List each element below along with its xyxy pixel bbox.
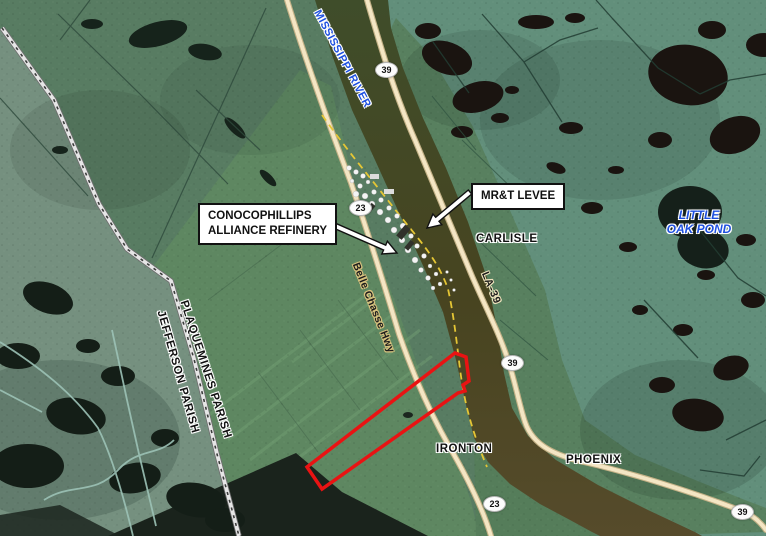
- ironton-label: IRONTON: [436, 443, 492, 455]
- route-shield-39-north: 39: [375, 62, 398, 78]
- route-shield-23-south: 23: [483, 496, 506, 512]
- route-shield-39-north-number: 39: [381, 65, 391, 75]
- route-shield-39-mid-number: 39: [507, 358, 517, 368]
- satellite-imagery: [0, 0, 766, 536]
- refinery-callout-line2: ALLIANCE REFINERY: [208, 224, 327, 239]
- phoenix-label: PHOENIX: [566, 454, 621, 466]
- little-oak-pond-line2: OAK POND: [656, 223, 742, 237]
- route-shield-23-south-number: 23: [489, 499, 499, 509]
- satellite-map: 39 23 39 23 39 MISSISSIPPI RIVER LITTLE …: [0, 0, 766, 536]
- route-shield-39-southeast-number: 39: [737, 507, 747, 517]
- route-shield-39-southeast: 39: [731, 504, 754, 520]
- little-oak-pond-label: LITTLE OAK POND: [656, 209, 742, 237]
- refinery-callout-line1: CONOCOPHILLIPS: [208, 209, 327, 224]
- carlisle-label: CARLISLE: [476, 233, 538, 245]
- route-shield-23-refinery-number: 23: [355, 203, 365, 213]
- little-oak-pond-line1: LITTLE: [656, 209, 742, 223]
- levee-callout-box: MR&T LEVEE: [471, 183, 565, 210]
- refinery-callout-box: CONOCOPHILLIPS ALLIANCE REFINERY: [198, 203, 337, 245]
- route-shield-23-refinery: 23: [349, 200, 372, 216]
- route-shield-39-mid: 39: [501, 355, 524, 371]
